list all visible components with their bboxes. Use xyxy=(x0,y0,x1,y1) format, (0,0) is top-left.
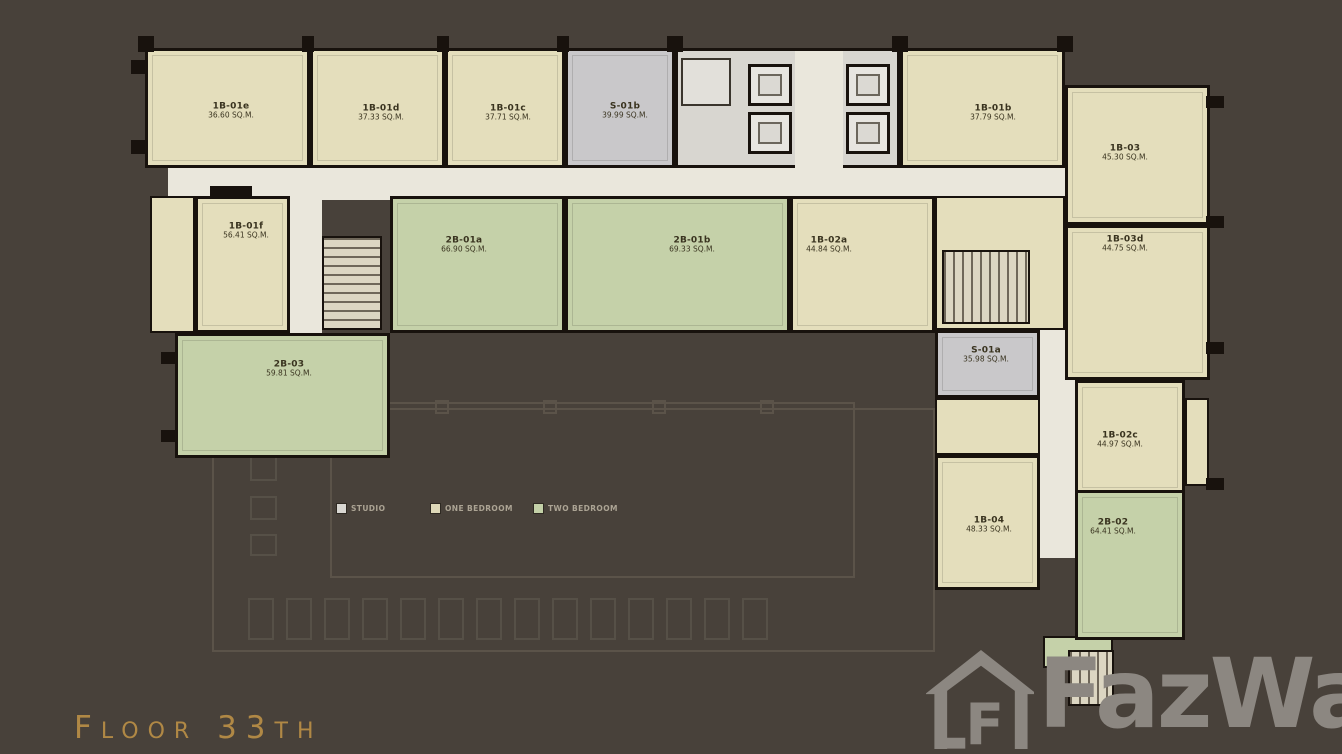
elevator-shaft xyxy=(846,112,890,154)
legend-swatch-two_bedroom xyxy=(533,503,544,514)
elevator-car xyxy=(758,74,782,96)
wall-stub xyxy=(557,36,569,52)
unit-area: 48.33 SQ.M. xyxy=(966,526,1012,534)
unit-label: 1B-02a44.84 SQ.M. xyxy=(806,236,852,255)
elevator-car xyxy=(758,122,782,144)
pool-deck xyxy=(330,402,855,578)
unit-label: 1B-01e36.60 SQ.M. xyxy=(208,102,254,121)
unit-area: 37.33 SQ.M. xyxy=(358,114,404,122)
wall-stub xyxy=(1206,96,1224,108)
unit-label: S-01b39.99 SQ.M. xyxy=(602,102,648,121)
unit-label: 2B-01b69.33 SQ.M. xyxy=(669,236,715,255)
fazwaz-watermark: F FazWaz xyxy=(926,648,1342,754)
deck-column xyxy=(543,400,557,414)
wall-stub xyxy=(210,186,252,199)
unit-area: 44.75 SQ.M. xyxy=(1102,245,1148,253)
unit-area: 56.41 SQ.M. xyxy=(223,232,269,240)
elevator-shaft xyxy=(748,64,792,106)
service-rooms-mid xyxy=(935,398,1040,455)
unit-S-01a: S-01a35.98 SQ.M. xyxy=(935,330,1040,398)
unit-label: 1B-03d44.75 SQ.M. xyxy=(1102,235,1148,254)
balcony-unit xyxy=(628,598,654,640)
unit-area: 44.97 SQ.M. xyxy=(1097,441,1143,449)
legend-item-two_bedroom: TWO BEDROOM xyxy=(533,503,618,514)
balcony-unit xyxy=(590,598,616,640)
terrace-planter xyxy=(250,496,277,520)
unit-label: 1B-0345.30 SQ.M. xyxy=(1102,144,1148,163)
wall-stub xyxy=(892,36,908,52)
unit-area: 37.79 SQ.M. xyxy=(970,114,1016,122)
elevator-lobby xyxy=(795,51,843,168)
wall-stub xyxy=(131,60,145,74)
wall-stub xyxy=(131,140,145,154)
balcony-unit xyxy=(286,598,312,640)
unit-label: 1B-01c37.71 SQ.M. xyxy=(485,104,531,123)
unit-area: 44.84 SQ.M. xyxy=(806,246,852,254)
legend-swatch-studio xyxy=(336,503,347,514)
unit-label: 2B-0264.41 SQ.M. xyxy=(1090,518,1136,537)
unit-area: 37.71 SQ.M. xyxy=(485,114,531,122)
legend-swatch-one_bedroom xyxy=(430,503,441,514)
unit-1B-01d: 1B-01d37.33 SQ.M. xyxy=(310,48,445,168)
balcony-unit xyxy=(552,598,578,640)
balcony-unit xyxy=(514,598,540,640)
unit-area: 64.41 SQ.M. xyxy=(1090,528,1136,536)
legend-item-one_bedroom: ONE BEDROOM xyxy=(430,503,513,514)
unit-label: 1B-0448.33 SQ.M. xyxy=(966,516,1012,535)
terrace-planter xyxy=(250,456,277,481)
terrace-planter xyxy=(250,534,277,556)
unit-label: 1B-01b37.79 SQ.M. xyxy=(970,104,1016,123)
svg-text:F: F xyxy=(965,692,1004,752)
unit-area: 39.99 SQ.M. xyxy=(602,112,648,120)
staircase-west xyxy=(322,236,382,330)
balcony-strip-east xyxy=(1185,398,1209,486)
wall-stub xyxy=(667,36,683,52)
unit-label: 1B-01d37.33 SQ.M. xyxy=(358,104,404,123)
service-rooms-west xyxy=(150,196,195,333)
wall-stub xyxy=(1206,342,1224,354)
unit-1B-01b: 1B-01b37.79 SQ.M. xyxy=(900,48,1065,168)
wall-stub xyxy=(302,36,314,52)
elevator-car xyxy=(856,74,880,96)
unit-S-01b: S-01b39.99 SQ.M. xyxy=(565,48,675,168)
deck-column xyxy=(652,400,666,414)
deck-column xyxy=(435,400,449,414)
balcony-unit xyxy=(324,598,350,640)
unit-1B-03: 1B-0345.30 SQ.M. xyxy=(1065,85,1210,225)
balcony-unit xyxy=(438,598,464,640)
balcony-unit xyxy=(400,598,426,640)
wall-stub xyxy=(138,36,154,52)
unit-label: 2B-01a66.90 SQ.M. xyxy=(441,236,487,255)
legend-item-studio: STUDIO xyxy=(336,503,385,514)
unit-area: 66.90 SQ.M. xyxy=(441,246,487,254)
unit-1B-01e: 1B-01e36.60 SQ.M. xyxy=(145,48,310,168)
legend-label: ONE BEDROOM xyxy=(445,504,513,513)
staircase-east xyxy=(942,250,1030,324)
floor-title: Floor 33th xyxy=(74,710,323,746)
balcony-unit xyxy=(704,598,730,640)
fazwaz-house-icon: F xyxy=(926,650,1034,752)
wall-stub xyxy=(161,352,175,364)
unit-2B-02: 2B-0264.41 SQ.M. xyxy=(1075,490,1185,640)
unit-label: 1B-01f56.41 SQ.M. xyxy=(223,222,269,241)
wall-stub xyxy=(161,430,175,442)
balcony-unit xyxy=(476,598,502,640)
unit-2B-01a: 2B-01a66.90 SQ.M. xyxy=(390,196,565,333)
wall-stub xyxy=(437,36,449,52)
unit-label: 1B-02c44.97 SQ.M. xyxy=(1097,431,1143,450)
balcony-unit xyxy=(666,598,692,640)
wall-stub xyxy=(1206,478,1224,490)
balcony-unit xyxy=(362,598,388,640)
elevator-car xyxy=(856,122,880,144)
fazwaz-logo-text: FazWaz xyxy=(1038,644,1342,745)
unit-1B-04: 1B-0448.33 SQ.M. xyxy=(935,455,1040,590)
unit-2B-03: 2B-0359.81 SQ.M. xyxy=(175,333,390,458)
balcony-unit xyxy=(742,598,768,640)
balcony-unit xyxy=(248,598,274,640)
unit-area: 45.30 SQ.M. xyxy=(1102,154,1148,162)
corridor-left-connector xyxy=(290,196,322,336)
unit-1B-01f: 1B-01f56.41 SQ.M. xyxy=(195,196,290,333)
unit-1B-02a: 1B-02a44.84 SQ.M. xyxy=(790,196,935,333)
floor-plan-screenshot: 1B-01e36.60 SQ.M.1B-01d37.33 SQ.M.1B-01c… xyxy=(0,0,1342,754)
legend-label: STUDIO xyxy=(351,504,385,513)
unit-1B-01c: 1B-01c37.71 SQ.M. xyxy=(445,48,565,168)
elevator-shaft xyxy=(748,112,792,154)
unit-1B-03d: 1B-03d44.75 SQ.M. xyxy=(1065,225,1210,380)
unit-area: 69.33 SQ.M. xyxy=(669,246,715,254)
unit-area: 59.81 SQ.M. xyxy=(266,370,312,378)
deck-column xyxy=(760,400,774,414)
unit-label: 2B-0359.81 SQ.M. xyxy=(266,360,312,379)
unit-area: 35.98 SQ.M. xyxy=(963,356,1009,364)
wall-stub xyxy=(1206,216,1224,228)
elevator-shaft xyxy=(846,64,890,106)
elevator-machine-room xyxy=(681,58,731,106)
unit-label: S-01a35.98 SQ.M. xyxy=(963,346,1009,365)
unit-1B-02c: 1B-02c44.97 SQ.M. xyxy=(1075,380,1185,495)
wall-stub xyxy=(1057,36,1073,52)
unit-area: 36.60 SQ.M. xyxy=(208,112,254,120)
unit-2B-01b: 2B-01b69.33 SQ.M. xyxy=(565,196,790,333)
legend-label: TWO BEDROOM xyxy=(548,504,618,513)
